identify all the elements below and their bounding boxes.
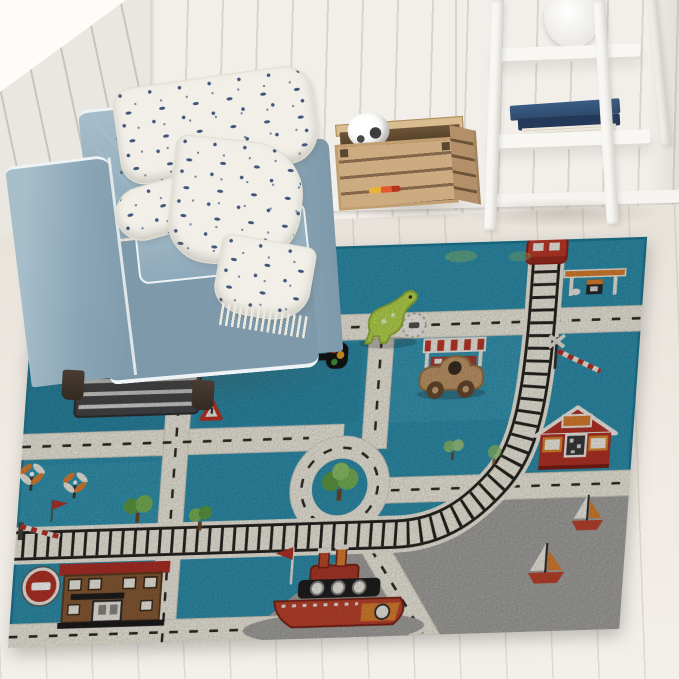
crate-front: [334, 137, 458, 211]
chair-foot: [191, 379, 215, 410]
shelf-board-bottom: [488, 129, 650, 149]
toy-stick: [369, 185, 401, 193]
shelf-board-top: [492, 43, 640, 61]
armchair: [20, 84, 338, 396]
ladder-shelf: [468, 0, 679, 232]
chair-foot: [61, 369, 85, 400]
nursery-photo: [0, 0, 679, 679]
crate-side: [449, 125, 481, 204]
toy-crate: [333, 111, 479, 217]
vase: [544, 0, 600, 48]
shelf-rail-left: [484, 0, 504, 230]
shelf-back-leg: [647, 0, 671, 146]
